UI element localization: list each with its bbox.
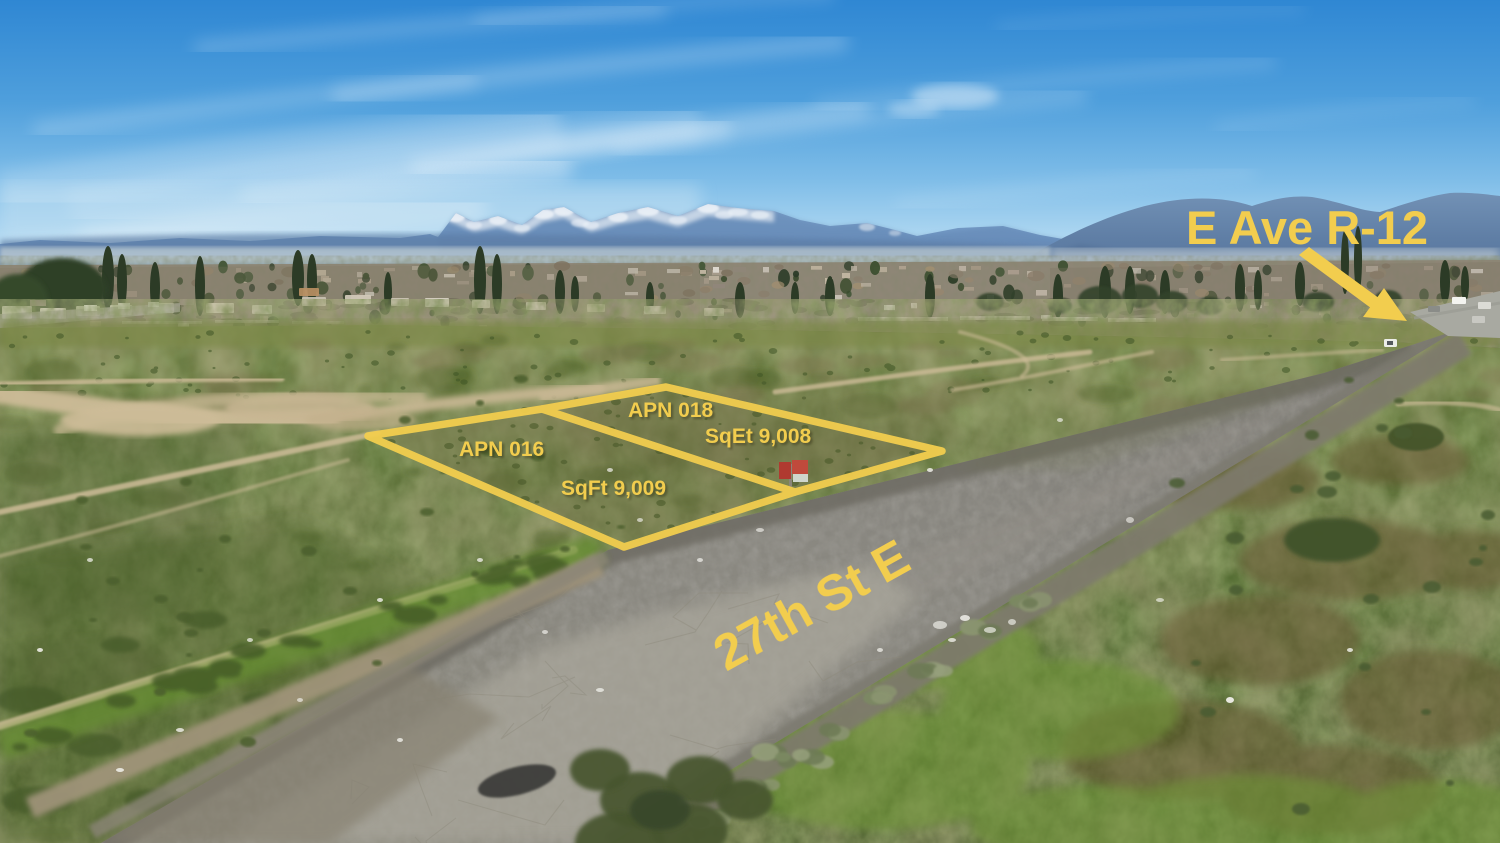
svg-text:APN 018: APN 018	[628, 399, 714, 422]
svg-text:SqFt 9,009: SqFt 9,009	[561, 477, 666, 500]
svg-text:APN 016: APN 016	[459, 438, 544, 461]
svg-text:E Ave R-12: E Ave R-12	[1186, 201, 1428, 254]
svg-text:SqEt 9,008: SqEt 9,008	[705, 425, 812, 448]
